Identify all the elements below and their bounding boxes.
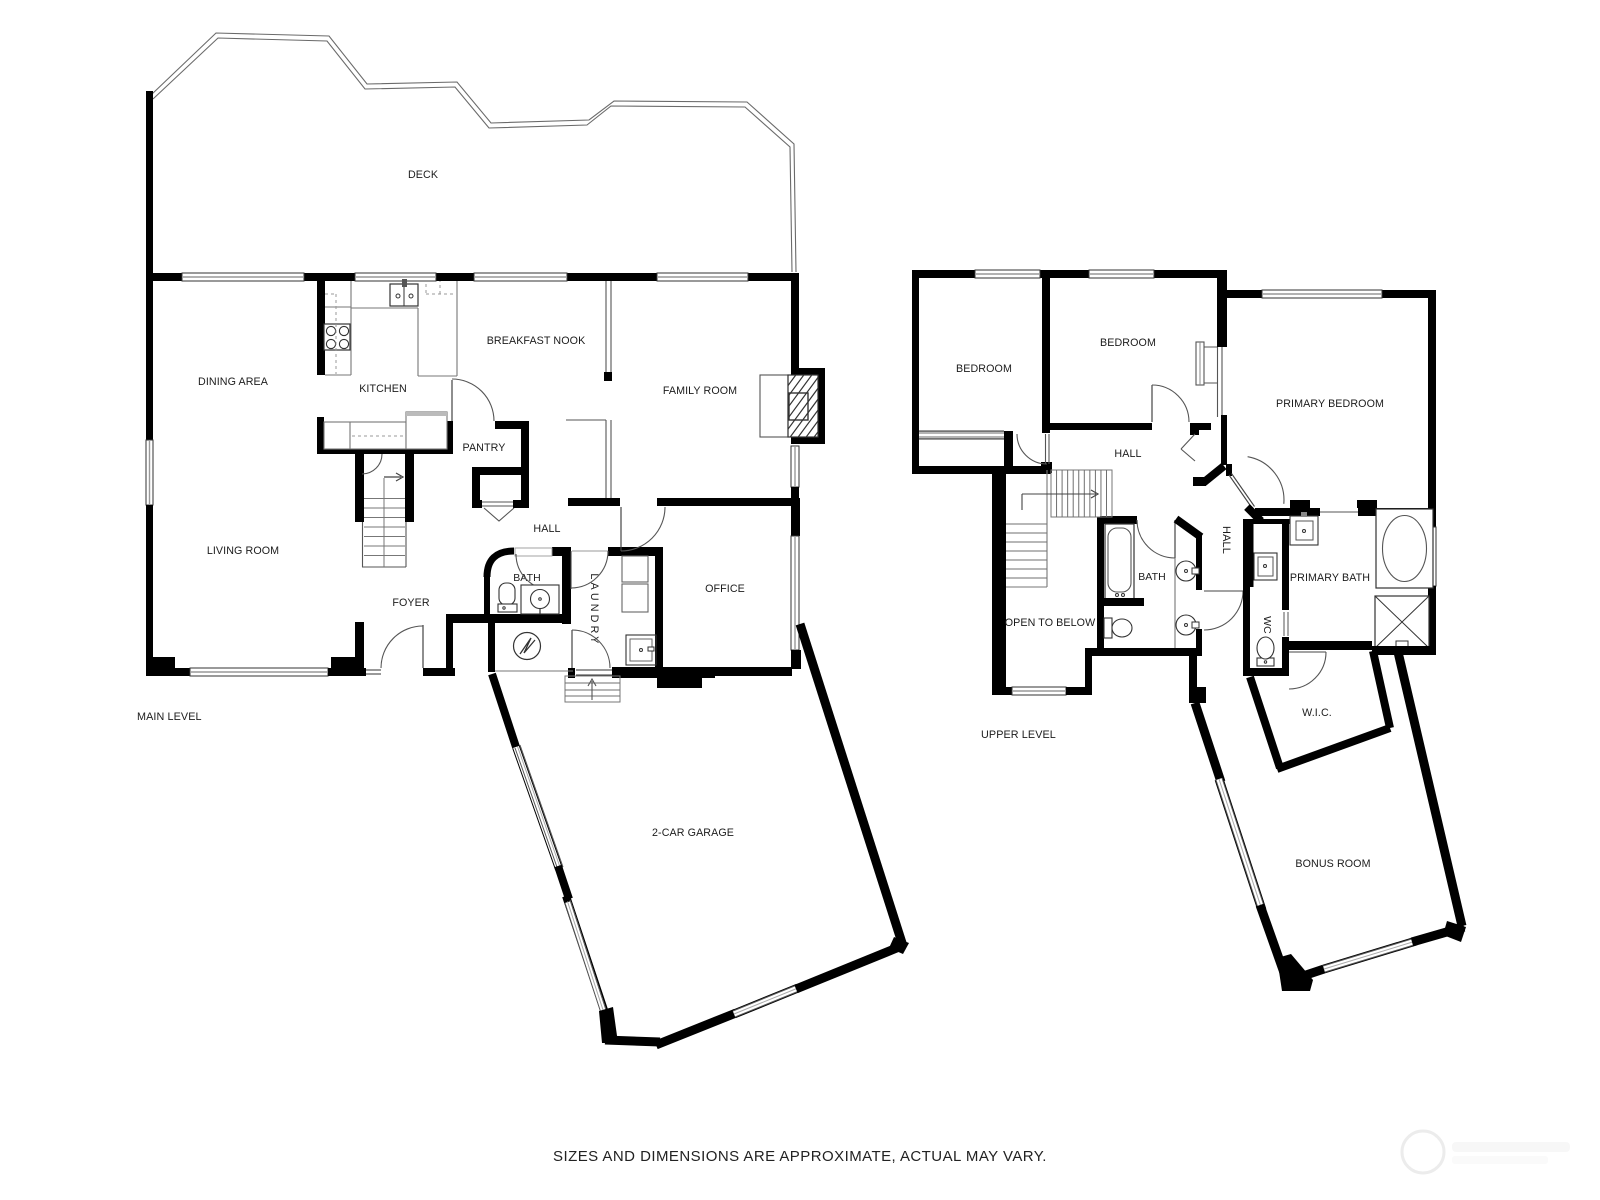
svg-text:HALL: HALL [533, 523, 560, 535]
svg-text:WC: WC [1261, 616, 1273, 634]
svg-text:BEDROOM: BEDROOM [1100, 337, 1156, 349]
svg-text:PANTRY: PANTRY [463, 442, 506, 454]
svg-text:DECK: DECK [408, 169, 439, 181]
svg-text:BEDROOM: BEDROOM [956, 363, 1012, 375]
svg-text:UPPER LEVEL: UPPER LEVEL [981, 729, 1056, 741]
svg-text:FOYER: FOYER [392, 597, 429, 609]
svg-text:PRIMARY BATH: PRIMARY BATH [1290, 572, 1370, 584]
svg-text:BATH: BATH [513, 572, 541, 584]
svg-text:SIZES AND DIMENSIONS ARE APPRO: SIZES AND DIMENSIONS ARE APPROXIMATE, AC… [553, 1148, 1047, 1165]
svg-text:HALL: HALL [1220, 526, 1232, 554]
svg-text:OPEN TO BELOW: OPEN TO BELOW [1005, 617, 1096, 629]
svg-text:BATH: BATH [1138, 571, 1166, 583]
svg-text:MAIN LEVEL: MAIN LEVEL [137, 711, 202, 723]
svg-text:2-CAR GARAGE: 2-CAR GARAGE [652, 827, 734, 839]
svg-text:BONUS ROOM: BONUS ROOM [1295, 858, 1370, 870]
svg-text:DINING AREA: DINING AREA [198, 376, 269, 388]
svg-text:BREAKFAST NOOK: BREAKFAST NOOK [487, 335, 586, 347]
svg-text:FAMILY ROOM: FAMILY ROOM [663, 385, 737, 397]
svg-text:LAUNDRY: LAUNDRY [588, 573, 600, 646]
svg-text:W.I.C.: W.I.C. [1302, 707, 1332, 719]
svg-text:HALL: HALL [1114, 448, 1141, 460]
svg-text:OFFICE: OFFICE [705, 583, 745, 595]
svg-text:KITCHEN: KITCHEN [359, 383, 407, 395]
svg-text:PRIMARY BEDROOM: PRIMARY BEDROOM [1276, 398, 1384, 410]
svg-text:LIVING ROOM: LIVING ROOM [207, 545, 279, 557]
